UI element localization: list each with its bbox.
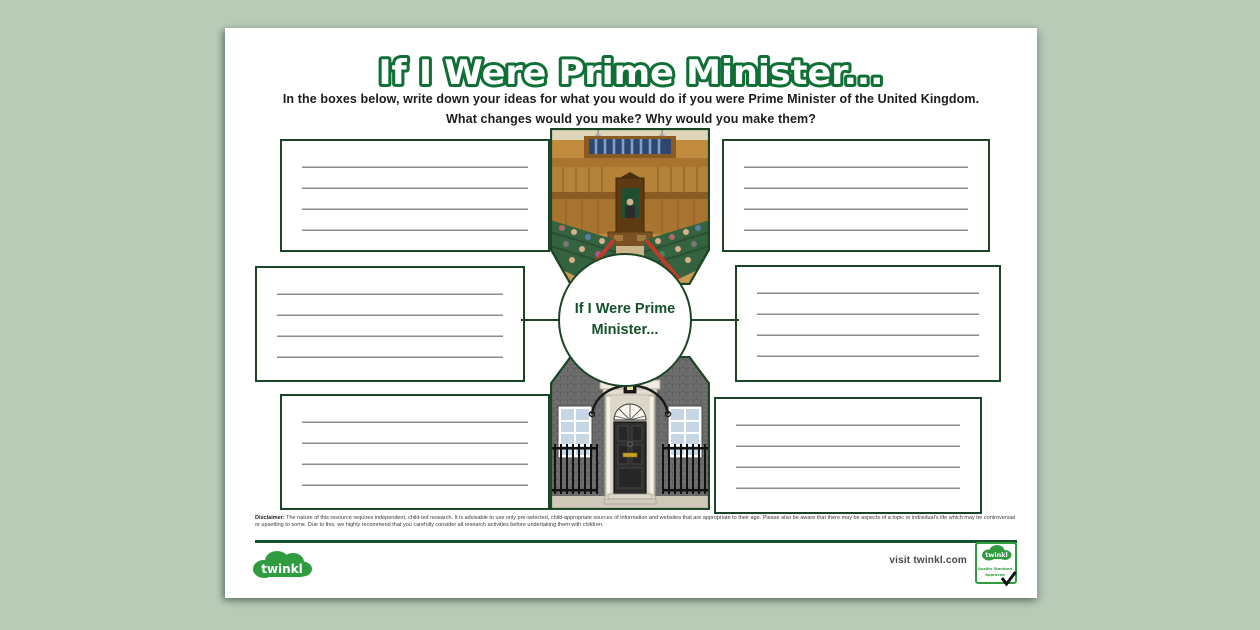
instruction-line-1: In the boxes below, write down your idea…	[225, 92, 1037, 106]
door-icon	[614, 422, 646, 494]
badge-label-line-2: Approved	[985, 573, 1005, 577]
writing-box-middle-left[interactable]	[255, 266, 525, 382]
twinkl-logo: twinkl	[251, 549, 315, 583]
disclaimer-body: The nature of this resource requires ind…	[255, 515, 1015, 528]
badge-brand-text: twinkl	[985, 551, 1008, 559]
writing-lines	[736, 405, 960, 506]
writing-box-middle-right[interactable]	[735, 265, 1001, 382]
connector-line-right	[685, 319, 739, 321]
writing-box-top-left[interactable]	[280, 139, 550, 252]
writing-lines	[302, 402, 528, 502]
center-topic-line-1: If I Were Prime	[575, 299, 675, 320]
center-topic-line-2: Minister...	[592, 320, 659, 341]
visit-twinkl-link[interactable]: visit twinkl.com	[835, 555, 967, 566]
twinkl-logo-text: twinkl	[261, 562, 303, 576]
writing-box-top-right[interactable]	[722, 139, 990, 252]
worksheet-title-fill: If I Were Prime Minister...	[379, 53, 884, 93]
badge-label-line-1: Quality Standard	[978, 567, 1013, 571]
writing-box-bottom-left[interactable]	[280, 394, 550, 510]
writing-lines	[302, 147, 528, 244]
writing-box-bottom-right[interactable]	[714, 397, 982, 514]
writing-lines	[277, 274, 503, 374]
disclaimer-text: Disclaimer: The nature of this resource …	[255, 515, 1017, 529]
writing-lines	[744, 147, 968, 244]
disclaimer-label: Disclaimer:	[255, 515, 285, 521]
writing-lines	[757, 273, 979, 374]
center-topic-circle: If I Were Prime Minister...	[558, 253, 692, 387]
instruction-line-2: What changes would you make? Why would y…	[225, 112, 1037, 126]
footer-divider	[255, 540, 1017, 543]
quality-standard-badge: twinkl Quality Standard Approved	[975, 542, 1017, 588]
worksheet-title: If I Were Prime Minister... If I Were Pr…	[225, 46, 1037, 98]
worksheet-page: If I Were Prime Minister... If I Were Pr…	[225, 28, 1037, 598]
page-background: If I Were Prime Minister... If I Were Pr…	[0, 0, 1260, 630]
